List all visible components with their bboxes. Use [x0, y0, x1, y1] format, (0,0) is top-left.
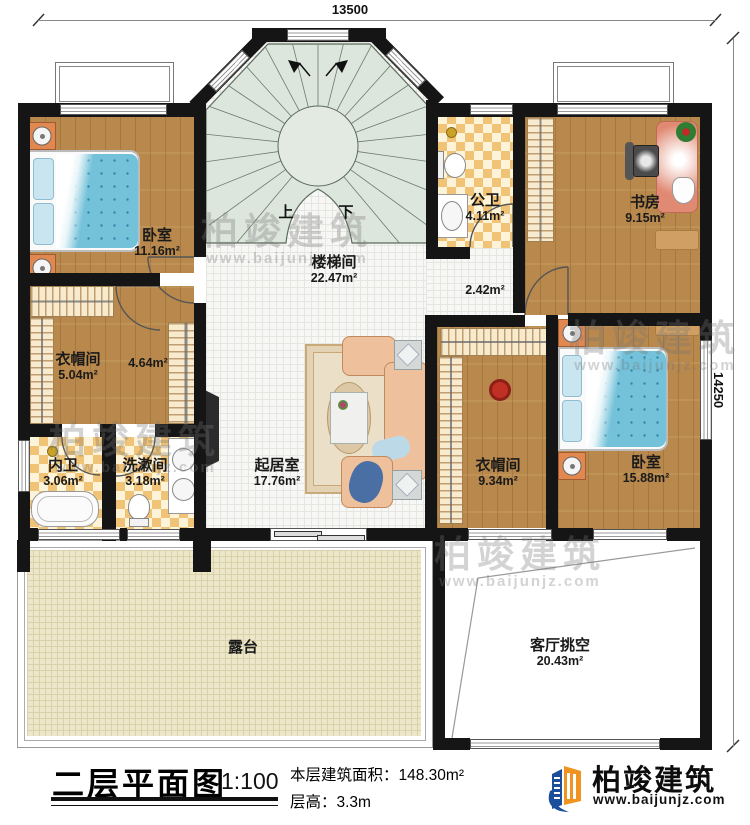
pillar	[17, 540, 30, 572]
wall-segment	[194, 100, 206, 257]
room-label-bedroom-left: 卧室11.16m²	[134, 228, 180, 258]
room-label-stairwell: 楼梯间22.47m²	[311, 255, 358, 285]
lamp-icon	[563, 457, 582, 476]
pillow	[562, 400, 582, 442]
room-label-cloakroom-left: 衣帽间5.04m²	[55, 352, 100, 382]
plant-icon	[676, 122, 696, 142]
pillow	[33, 203, 54, 245]
company-logo-icon	[543, 759, 589, 815]
coffee-table	[330, 392, 368, 444]
window	[468, 529, 552, 540]
room-label-study: 书房9.15m²	[625, 195, 665, 225]
room-label-living: 起居室17.76m²	[254, 458, 301, 488]
floor-plan-canvas: 柏竣建筑www.baijunjz.com 柏竣建筑www.baijunjz.co…	[0, 0, 750, 825]
wall-segment	[700, 440, 712, 541]
cabinet	[655, 230, 699, 250]
window	[557, 104, 668, 115]
pillar	[193, 540, 211, 572]
wall-segment	[102, 424, 116, 541]
wall-segment	[700, 103, 712, 340]
sliding-door-panel	[274, 531, 322, 537]
dimension-value-right: 14250	[711, 372, 726, 408]
waste-bin	[672, 177, 695, 204]
sink	[172, 478, 195, 501]
window	[593, 529, 667, 540]
dimension-value-top: 13500	[332, 2, 368, 17]
closet-rack	[30, 317, 54, 424]
side-table	[392, 470, 422, 500]
pillow	[33, 158, 54, 200]
wall-segment	[367, 528, 433, 541]
bed-left-quilt	[56, 154, 138, 248]
title-underline-thin	[51, 805, 278, 806]
wall-segment	[120, 528, 127, 541]
sliding-door	[270, 528, 367, 541]
closet-rack	[30, 286, 114, 317]
title-underline	[51, 797, 278, 801]
toilet	[444, 153, 466, 178]
room-label-terrace: 露台	[228, 640, 258, 657]
room-label-cloakroom-right: 衣帽间9.34m²	[475, 458, 520, 488]
wall-segment	[206, 528, 270, 541]
toilet-tank	[129, 518, 149, 527]
sink	[172, 448, 195, 471]
floor-height-text: 层高：3.3m	[290, 790, 371, 812]
window	[38, 529, 120, 540]
sink	[441, 201, 463, 231]
stair-up-label: 上	[278, 201, 293, 222]
stair-down-label: 下	[338, 201, 353, 222]
nightstand	[28, 122, 56, 150]
wall-segment	[552, 528, 593, 541]
wall-segment	[433, 528, 468, 541]
pillow	[562, 355, 582, 397]
wall-segment	[194, 303, 206, 541]
faucet-icon	[47, 446, 58, 457]
nightstand	[558, 452, 586, 480]
side-table	[394, 340, 422, 370]
toilet	[128, 494, 150, 520]
dimension-line-top	[38, 20, 716, 21]
window	[127, 529, 180, 540]
wall-segment	[426, 247, 470, 259]
wall-segment	[700, 541, 712, 750]
stool	[489, 379, 511, 401]
bed-sheet-fold	[586, 351, 630, 447]
dimension-line-right	[733, 38, 734, 746]
wall-segment	[28, 273, 160, 286]
wall-segment	[568, 313, 712, 326]
wall-segment	[433, 541, 445, 750]
room-label-master-bath: 内卫3.06m²	[43, 458, 83, 488]
window	[18, 440, 30, 492]
watermark: 柏竣建筑www.baijunjz.com	[434, 536, 606, 591]
wall-segment	[426, 100, 438, 248]
sliding-door-panel	[317, 535, 365, 541]
window	[287, 29, 349, 41]
terrace-railing-inner	[24, 547, 426, 741]
monitor	[633, 145, 659, 177]
area-label-cloak-corridor: 4.64m²	[128, 357, 168, 371]
bathtub-inner	[37, 496, 93, 522]
room-label-void: 客厅挑空20.43m²	[530, 638, 590, 668]
bed-sheet-fold	[56, 154, 101, 248]
drawing-scale: 1:100	[221, 768, 279, 795]
lamp-icon	[563, 324, 582, 343]
room-label-washroom: 洗漱间3.18m²	[122, 458, 167, 488]
bay-window-bedroom-left	[55, 62, 174, 106]
wall-segment	[425, 315, 525, 327]
window	[60, 104, 167, 115]
room-label-public-bath: 公卫4.11m²	[466, 193, 505, 223]
flower-decor-icon	[338, 400, 348, 410]
wall-segment	[513, 103, 525, 313]
floor-area-text: 本层建筑面积：148.30m²	[290, 763, 464, 785]
closet-rack	[439, 356, 463, 524]
room-label-bedroom-right: 卧室15.88m²	[623, 455, 670, 485]
company-logo-url: www.baijunjz.com	[593, 792, 726, 807]
closet-rack	[440, 328, 548, 356]
wardrobe-rack	[527, 117, 554, 242]
bed-right-quilt	[586, 351, 666, 447]
faucet-icon	[446, 127, 457, 138]
lamp-icon	[33, 127, 52, 146]
wall-segment	[425, 315, 437, 541]
window	[470, 739, 660, 749]
window	[470, 104, 513, 115]
area-label-hall-corridor: 2.42m²	[465, 284, 505, 298]
wall-segment	[546, 315, 558, 541]
bay-window-study	[553, 62, 674, 106]
